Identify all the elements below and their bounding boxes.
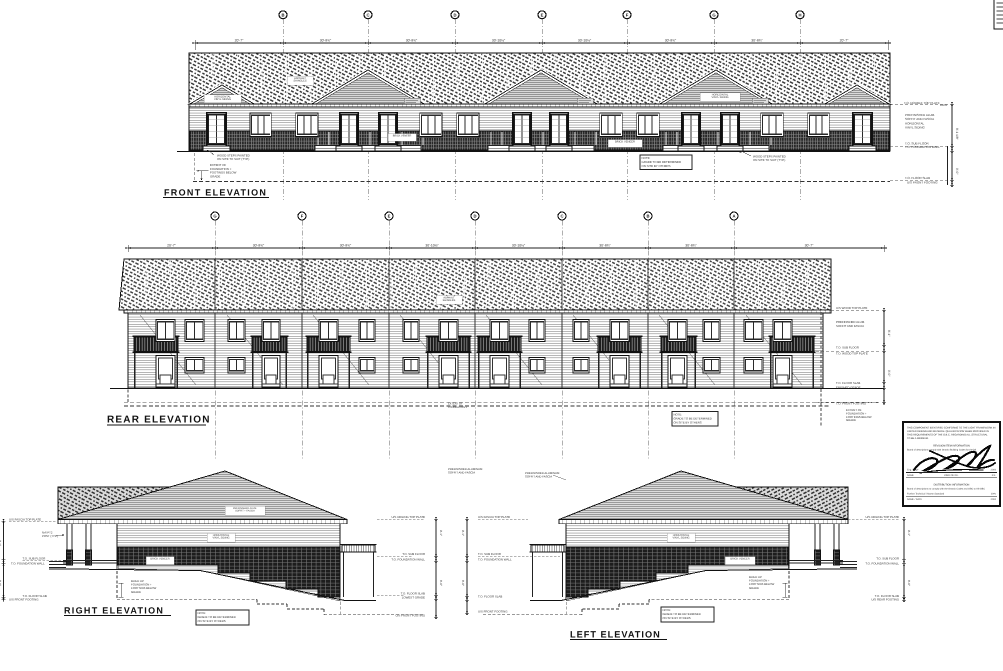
svg-text:FRONT ELEVATION: FRONT ELEVATION xyxy=(164,187,267,197)
svg-text:9'-1": 9'-1" xyxy=(0,540,2,546)
svg-text:GRADE: GRADE xyxy=(846,418,856,422)
svg-text:30'-8¾": 30'-8¾" xyxy=(685,243,697,247)
svg-text:8'-1": 8'-1" xyxy=(887,330,891,336)
svg-text:Board of descriptions comply w: Board of descriptions comply with Ontari… xyxy=(907,449,977,452)
svg-text:T.O. SUB FLOOR: T.O. SUB FLOOR xyxy=(402,552,425,556)
svg-text:ON SITE BY OTHERS: ON SITE BY OTHERS xyxy=(198,619,226,623)
svg-text:30'-8¾": 30'-8¾" xyxy=(320,38,332,42)
svg-text:2004: 2004 xyxy=(991,469,997,472)
svg-text:BRICK VENEER: BRICK VENEER xyxy=(615,140,635,143)
svg-text:20#v: 20#v xyxy=(991,493,997,496)
svg-text:VINYL SIDING: VINYL SIDING xyxy=(905,126,925,130)
svg-text:SOFFIT AND FASCIA: SOFFIT AND FASCIA xyxy=(525,475,552,479)
svg-text:T.O. SUB FLOOR: T.O. SUB FLOOR xyxy=(478,552,501,556)
svg-text:T.O. FOUNDATION WALL: T.O. FOUNDATION WALL xyxy=(391,558,425,562)
svg-text:T.O. FOUNDATION WALL: T.O. FOUNDATION WALL xyxy=(905,145,940,149)
svg-text:F: F xyxy=(301,214,304,219)
svg-text:U/S REAR FOOTING: U/S REAR FOOTING xyxy=(871,598,899,602)
svg-text:GRADE: GRADE xyxy=(131,590,141,594)
svg-text:GRADE: GRADE xyxy=(749,586,759,590)
svg-text:FOUNDATION +: FOUNDATION + xyxy=(448,406,468,409)
svg-text:D: D xyxy=(453,12,456,17)
svg-text:VINYL SIDING: VINYL SIDING xyxy=(212,537,229,540)
svg-text:SOFFIT AND FASCIA: SOFFIT AND FASCIA xyxy=(836,324,864,328)
svg-text:VINYL SIDING: VINYL SIDING xyxy=(672,537,689,540)
svg-text:DISTRIBUTION INFORMATION: DISTRIBUTION INFORMATION xyxy=(934,484,970,487)
svg-text:30'-8¾": 30'-8¾" xyxy=(751,38,763,42)
svg-text:REAR ELEVATION: REAR ELEVATION xyxy=(107,415,211,426)
svg-text:H: H xyxy=(798,12,801,17)
svg-text:U/S CEILING TOP PLATE: U/S CEILING TOP PLATE xyxy=(391,515,425,519)
svg-text:30'-8¾": 30'-8¾" xyxy=(340,243,352,247)
svg-text:30'-10½": 30'-10½" xyxy=(578,38,592,42)
svg-text:NAME / DATE: NAME / DATE xyxy=(907,498,923,501)
svg-text:U/S FASCIA TOP PLATE: U/S FASCIA TOP PLATE xyxy=(9,517,41,521)
svg-text:TO BE A MINIMUM.: TO BE A MINIMUM. xyxy=(907,437,929,440)
svg-text:30'-8¾": 30'-8¾" xyxy=(599,243,611,247)
svg-text:VINYL SIDING: VINYL SIDING xyxy=(214,98,231,101)
svg-text:30'-10½": 30'-10½" xyxy=(512,243,526,247)
svg-text:DATE: DATE xyxy=(940,103,947,107)
svg-text:SHINGLES: SHINGLES xyxy=(443,299,456,302)
svg-text:LOWEST GRADE: LOWEST GRADE xyxy=(402,596,425,600)
svg-text:FINISHED GRADE: FINISHED GRADE xyxy=(836,386,861,390)
svg-text:NAME: NAME xyxy=(907,474,914,477)
svg-text:BRICK VENEER: BRICK VENEER xyxy=(393,134,412,137)
svg-text:ON SITE TO SUIT (TYP.): ON SITE TO SUIT (TYP.) xyxy=(753,158,785,162)
svg-text:30'-7": 30'-7" xyxy=(805,243,814,247)
svg-text:9'-1": 9'-1" xyxy=(907,530,911,536)
svg-text:8'-0": 8'-0" xyxy=(439,580,443,586)
svg-text:C: C xyxy=(366,12,369,17)
svg-text:KIND OF P.E.: KIND OF P.E. xyxy=(944,474,959,477)
svg-text:BRICK VENEER: BRICK VENEER xyxy=(150,557,169,560)
svg-text:Eng. Reg#: Eng. Reg# xyxy=(907,469,919,472)
svg-text:SOFFIT + FASCIA: SOFFIT + FASCIA xyxy=(235,510,255,513)
svg-text:GRADE: GRADE xyxy=(210,174,220,178)
svg-text:C: C xyxy=(560,214,563,219)
svg-text:E: E xyxy=(388,214,391,219)
svg-text:30'-8¾": 30'-8¾" xyxy=(665,38,677,42)
svg-text:T.O. SUB FLOOR: T.O. SUB FLOOR xyxy=(23,557,46,561)
svg-text:30'-8¾": 30'-8¾" xyxy=(253,243,265,247)
svg-text:F: F xyxy=(626,12,629,17)
svg-text:SOFFIT AND FASCIA: SOFFIT AND FASCIA xyxy=(448,471,475,475)
svg-text:8'-0": 8'-0" xyxy=(0,580,2,586)
svg-text:9'-0": 9'-0" xyxy=(955,168,959,174)
svg-text:U/S WOOD TOP PLATE: U/S WOOD TOP PLATE xyxy=(836,306,867,310)
svg-text:9'-0": 9'-0" xyxy=(887,370,891,376)
svg-text:20'-7": 20'-7" xyxy=(235,38,244,42)
svg-text:T.O. WOOD TOP PLATE: T.O. WOOD TOP PLATE xyxy=(836,352,868,356)
svg-text:8'-0": 8'-0" xyxy=(461,580,465,586)
svg-text:ON SITE TO SUIT (TYP.): ON SITE TO SUIT (TYP.) xyxy=(217,157,249,161)
svg-text:U/S FRONT FOOTING: U/S FRONT FOOTING xyxy=(478,610,508,614)
svg-text:30'-10½": 30'-10½" xyxy=(492,38,506,42)
svg-text:SHINGLES: SHINGLES xyxy=(293,80,306,83)
svg-text:U/S FRONT FOOTING: U/S FRONT FOOTING xyxy=(396,614,426,618)
svg-text:VINYL SIDING: VINYL SIDING xyxy=(711,96,728,99)
svg-text:T.O. FLOOR SLAB: T.O. FLOOR SLAB xyxy=(836,381,860,385)
svg-text:T.O. FRONT FOOTING: T.O. FRONT FOOTING xyxy=(836,402,867,406)
svg-text:REVISION/ITEM INFORMATION: REVISION/ITEM INFORMATION xyxy=(933,445,970,448)
svg-text:20'-7": 20'-7" xyxy=(167,243,176,247)
svg-text:ON SITE BY OTHERS: ON SITE BY OTHERS xyxy=(663,616,691,620)
svg-text:BRICK VENEER: BRICK VENEER xyxy=(730,557,749,560)
svg-text:RIGHT ELEVATION: RIGHT ELEVATION xyxy=(64,605,164,615)
svg-text:30'-8¾": 30'-8¾" xyxy=(406,38,418,42)
svg-text:T.O. FOUNDATION WALL: T.O. FOUNDATION WALL xyxy=(865,561,899,565)
svg-text:8'-0": 8'-0" xyxy=(907,580,911,586)
svg-text:POST (TYP.): POST (TYP.) xyxy=(42,534,58,538)
svg-text:T.O. SUB FLOOR: T.O. SUB FLOOR xyxy=(836,346,859,350)
svg-text:Further Technical / Name Stand: Further Technical / Name Standard xyxy=(907,493,945,496)
svg-text:B: B xyxy=(646,214,649,219)
svg-text:A: A xyxy=(732,214,735,219)
svg-text:D: D xyxy=(473,214,476,219)
svg-text:30'-10½": 30'-10½" xyxy=(425,243,439,247)
svg-text:B: B xyxy=(281,12,284,17)
svg-text:U/S FRONT FOOTING: U/S FRONT FOOTING xyxy=(907,181,938,185)
svg-text:ON SITE BY OTHERS: ON SITE BY OTHERS xyxy=(674,421,702,425)
svg-text:G: G xyxy=(213,214,216,219)
svg-text:LEFT ELEVATION: LEFT ELEVATION xyxy=(570,629,661,639)
svg-text:E: E xyxy=(541,12,544,17)
svg-text:U/S CEILING TOP PLATE: U/S CEILING TOP PLATE xyxy=(865,515,899,519)
svg-text:9'-1": 9'-1" xyxy=(439,530,443,536)
svg-text:T.O. FOUNDATION WALL: T.O. FOUNDATION WALL xyxy=(478,558,512,562)
svg-text:P.E.: P.E. xyxy=(992,474,997,477)
svg-text:T.O. FOUNDATION WALL: T.O. FOUNDATION WALL xyxy=(11,561,45,565)
svg-text:Board of descriptions to compl: Board of descriptions to comply with the… xyxy=(907,487,985,490)
svg-text:8'-1 1/8": 8'-1 1/8" xyxy=(955,128,959,140)
svg-text:G: G xyxy=(712,12,715,17)
svg-text:U/S FRONT FOOTING: U/S FRONT FOOTING xyxy=(9,598,39,602)
svg-text:ON SITE BY OTHERS: ON SITE BY OTHERS xyxy=(642,164,671,168)
svg-text:T.O. FLOOR SLAB: T.O. FLOOR SLAB xyxy=(905,176,930,180)
svg-text:T.O. DOUBLE TOP PLATE: T.O. DOUBLE TOP PLATE xyxy=(904,101,940,105)
svg-text:9'-1": 9'-1" xyxy=(461,530,465,536)
svg-text:U/S FASCIA TOP PLATE: U/S FASCIA TOP PLATE xyxy=(478,515,510,519)
svg-text:20'-7": 20'-7" xyxy=(840,38,849,42)
svg-text:T.O. FLOOR SLAB: T.O. FLOOR SLAB xyxy=(478,595,502,599)
svg-text:T.O. SUB FLOOR: T.O. SUB FLOOR xyxy=(876,557,899,561)
svg-text:2004: 2004 xyxy=(991,498,997,501)
